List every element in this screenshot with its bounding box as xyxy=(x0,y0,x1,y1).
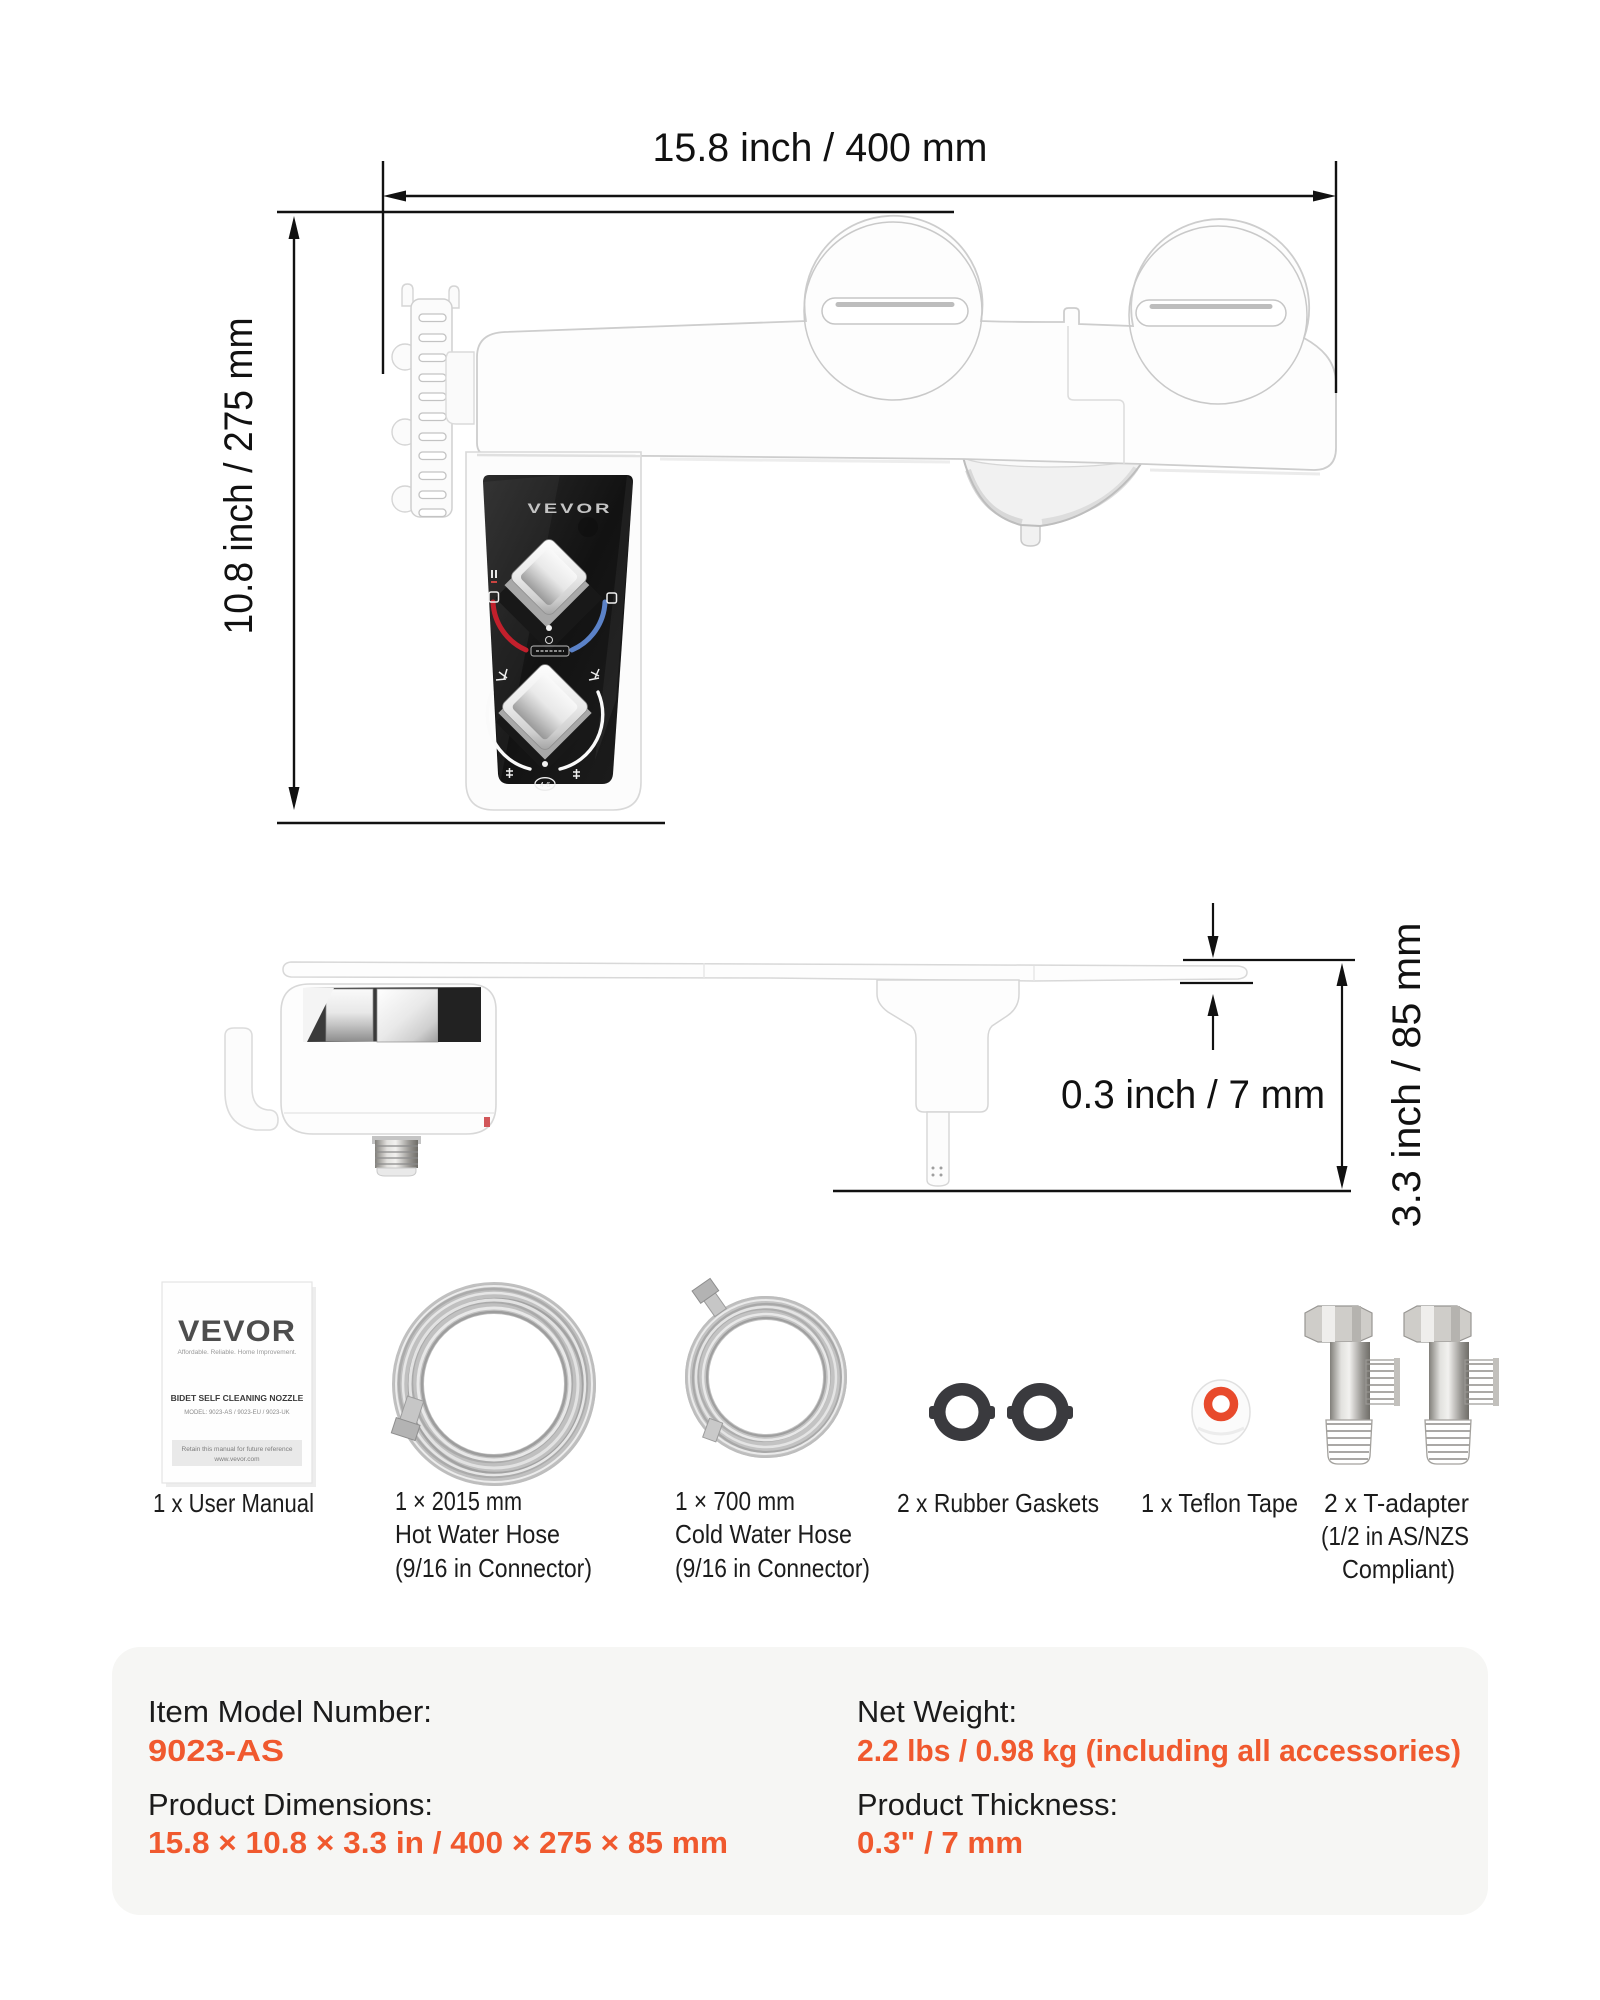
svg-text:1 x User Manual: 1 x User Manual xyxy=(153,1488,314,1518)
svg-text:2 x T-adapter: 2 x T-adapter xyxy=(1324,1488,1469,1518)
svg-text:Cold Water Hose: Cold Water Hose xyxy=(675,1519,852,1549)
svg-text:3.3 inch / 85 mm: 3.3 inch / 85 mm xyxy=(1385,923,1429,1228)
svg-text:1 × 700 mm: 1 × 700 mm xyxy=(675,1486,795,1516)
svg-text:4-6: 4-6 xyxy=(540,780,551,789)
svg-text:Compliant): Compliant) xyxy=(1342,1554,1455,1584)
svg-text:15.8 × 10.8 × 3.3 in / 400 × 2: 15.8 × 10.8 × 3.3 in / 400 × 275 × 85 mm xyxy=(148,1825,728,1860)
svg-text:2.2 lbs / 0.98 kg (including a: 2.2 lbs / 0.98 kg (including all accesso… xyxy=(857,1733,1461,1768)
svg-text:MODEL: 9023-AS / 9023-EU / 902: MODEL: 9023-AS / 9023-EU / 9023-UK xyxy=(184,1410,289,1416)
svg-text:1 x Teflon Tape: 1 x Teflon Tape xyxy=(1141,1488,1298,1518)
svg-text:(9/16 in Connector): (9/16 in Connector) xyxy=(395,1553,592,1583)
svg-text:Hot Water Hose: Hot Water Hose xyxy=(395,1519,560,1549)
svg-text:2 x Rubber Gaskets: 2 x Rubber Gaskets xyxy=(897,1488,1099,1518)
svg-text:www.vevor.com: www.vevor.com xyxy=(213,1456,259,1463)
svg-text:Affordable. Reliable. Home Imp: Affordable. Reliable. Home Improvement. xyxy=(177,1349,296,1356)
svg-text:10.8 inch / 275 mm: 10.8 inch / 275 mm xyxy=(217,318,261,635)
svg-text:Product Dimensions:: Product Dimensions: xyxy=(148,1787,433,1822)
svg-text:0.3 inch / 7 mm: 0.3 inch / 7 mm xyxy=(1061,1073,1325,1117)
svg-text:VEVOR: VEVOR xyxy=(178,1315,296,1348)
svg-text:Item Model Number:: Item Model Number: xyxy=(148,1694,432,1729)
svg-text:(1/2 in AS/NZS: (1/2 in AS/NZS xyxy=(1321,1521,1469,1551)
svg-text:BIDET SELF CLEANING NOZZLE: BIDET SELF CLEANING NOZZLE xyxy=(171,1393,304,1403)
svg-text:0.3" / 7 mm: 0.3" / 7 mm xyxy=(857,1825,1023,1860)
svg-text:15.8 inch / 400 mm: 15.8 inch / 400 mm xyxy=(653,126,988,170)
svg-text:Net Weight:: Net Weight: xyxy=(857,1694,1017,1729)
svg-text:(9/16 in Connector): (9/16 in Connector) xyxy=(675,1553,870,1583)
svg-text:1 × 2015 mm: 1 × 2015 mm xyxy=(395,1486,522,1516)
svg-text:9023-AS: 9023-AS xyxy=(148,1733,284,1768)
svg-text:VEVOR: VEVOR xyxy=(528,501,613,516)
svg-text:Retain this manual for future: Retain this manual for future reference xyxy=(182,1446,293,1453)
svg-text:Product Thickness:: Product Thickness: xyxy=(857,1787,1118,1822)
